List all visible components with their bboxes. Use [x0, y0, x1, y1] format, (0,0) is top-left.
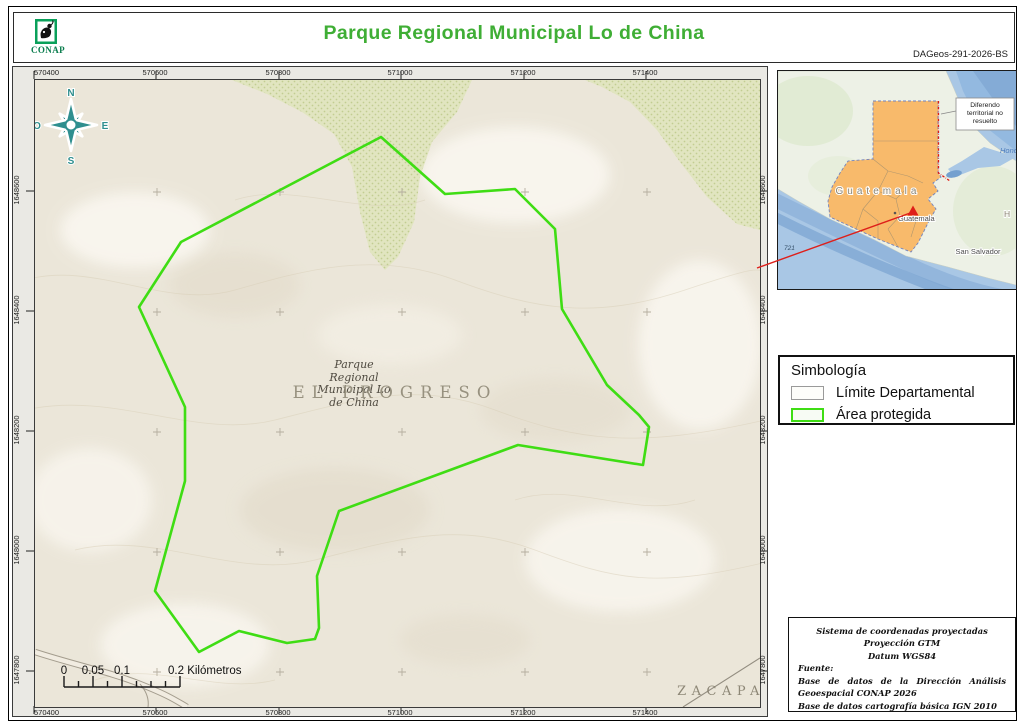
city-label-guatemala: Guatemala: [898, 214, 936, 223]
guatemala-city-dot: [894, 212, 897, 215]
legend-item-label: Límite Departamental: [836, 385, 975, 401]
page-title: Parque Regional Municipal Lo de China: [14, 22, 1014, 45]
map-frame: N E S O Parque Regional Municipal Lo de: [12, 66, 768, 717]
compass-letter-s: S: [68, 156, 75, 167]
y-tick-label: 1648000: [757, 520, 769, 580]
legend-box: Simbología Límite Departamental Área pro…: [778, 355, 1015, 425]
crs-line: Sistema de coordenadas proyectadas: [798, 625, 1006, 637]
y-tick-label: 1648200: [757, 400, 769, 460]
x-tick-label: 570400: [34, 67, 94, 78]
credits-box: Sistema de coordenadas proyectadas Proye…: [788, 617, 1016, 712]
scalebar-label-0: 0: [52, 665, 76, 677]
y-tick-label: 1648400: [11, 280, 23, 340]
x-tick-label: 571200: [493, 707, 553, 718]
x-tick-label: 570800: [248, 707, 308, 718]
doc-code: DAGeos-291-2026-BS: [913, 49, 1008, 60]
source-line: Base de datos de la Dirección Análisis G…: [798, 675, 1006, 700]
header: CONAP Parque Regional Municipal Lo de Ch…: [13, 12, 1015, 63]
route-label-721: 721: [784, 245, 795, 252]
y-tick-label: 1648400: [757, 280, 769, 340]
legend-item-departmental: Límite Departamental: [791, 385, 1013, 401]
x-tick-label: 571000: [370, 67, 430, 78]
city-label-san-salvador: San Salvador: [955, 247, 1001, 256]
x-tick-label: 570400: [34, 707, 94, 718]
compass-letter-e: E: [102, 121, 109, 132]
legend-item-label: Área protegida: [836, 407, 931, 423]
legend-title: Simbología: [791, 362, 1013, 379]
departmental-boundary-swatch: [791, 386, 824, 400]
scalebar-label-01: 0.1: [108, 665, 136, 677]
compass-letter-o: O: [35, 121, 41, 132]
note-line: Diferendo: [970, 102, 1000, 109]
y-tick-label: 1647800: [11, 640, 23, 700]
park-name-line: Parque: [274, 359, 434, 372]
x-tick-label: 570600: [125, 707, 185, 718]
conap-wordmark: CONAP: [31, 45, 61, 55]
y-tick-label: 1648600: [757, 160, 769, 220]
x-tick-label: 571400: [615, 67, 675, 78]
y-tick-label: 1648000: [11, 520, 23, 580]
note-line: resuelto: [973, 118, 997, 125]
source-line: Base de datos cartografía básica IGN 201…: [798, 700, 1006, 712]
map-canvas: N E S O Parque Regional Municipal Lo de: [34, 79, 761, 708]
y-tick-label: 1648600: [11, 160, 23, 220]
protected-area-swatch: [791, 408, 824, 422]
note-line: territorial no: [967, 110, 1003, 117]
sea-label-partial: Hond: [1000, 146, 1016, 155]
map-sheet: CONAP Parque Regional Municipal Lo de Ch…: [0, 0, 1024, 726]
inset-map: Diferendo territorial no resuelto Guatem…: [777, 70, 1017, 290]
fuente-label: Fuente:: [798, 662, 1006, 674]
x-tick-label: 570800: [248, 67, 308, 78]
department-label-zacapa: ZACAPA: [651, 684, 761, 699]
legend-item-protected-area: Área protegida: [791, 407, 1013, 423]
scalebar-value: 0.2: [168, 665, 184, 677]
compass-letter-n: N: [67, 88, 74, 99]
x-tick-label: 571200: [493, 67, 553, 78]
honduras-label-partial: H o: [1004, 209, 1016, 219]
y-tick-label: 1648200: [11, 400, 23, 460]
x-tick-label: 571000: [370, 707, 430, 718]
country-label: Guatemala: [836, 186, 921, 197]
scalebar-label-005: 0.05: [75, 665, 111, 677]
inset-layer: Diferendo territorial no resuelto Guatem…: [778, 71, 1016, 289]
scalebar-label-02: 0.2 Kilómetros: [168, 665, 242, 677]
datum-line: Datum WGS84: [798, 650, 1006, 662]
y-tick-label: 1647800: [757, 640, 769, 700]
x-tick-label: 570600: [125, 67, 185, 78]
department-label-el-progreso: EL PROGRESO: [265, 383, 525, 402]
x-tick-label: 571400: [615, 707, 675, 718]
projection-line: Proyección GTM: [798, 637, 1006, 649]
scalebar-unit: Kilómetros: [187, 665, 241, 677]
